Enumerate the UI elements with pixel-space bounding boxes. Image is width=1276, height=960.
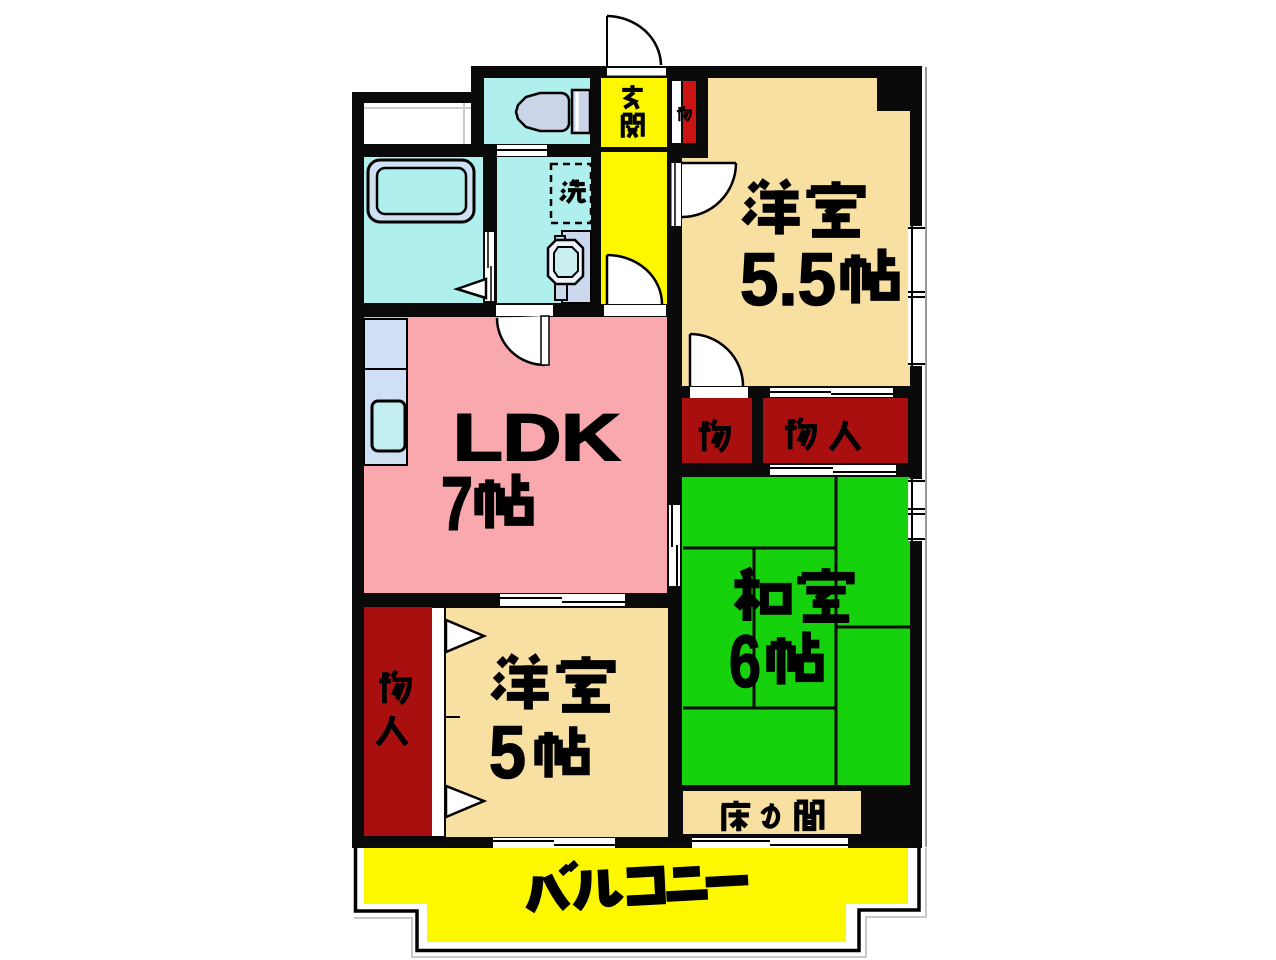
svg-text:6: 6 <box>729 620 761 703</box>
svg-text:7: 7 <box>441 462 473 547</box>
svg-text:5.5: 5.5 <box>740 238 836 321</box>
svg-text:LDK: LDK <box>453 400 620 474</box>
svg-text:5: 5 <box>489 711 526 794</box>
